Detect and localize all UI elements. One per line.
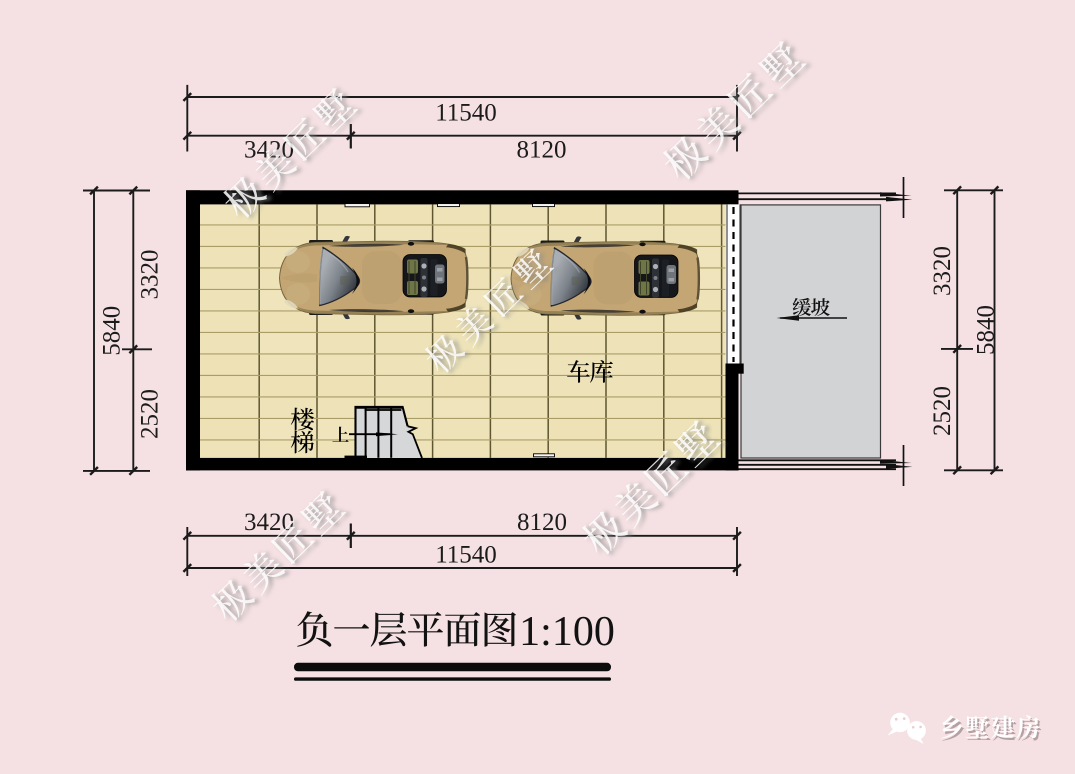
svg-text:2520: 2520 xyxy=(929,386,956,436)
svg-text:11540: 11540 xyxy=(435,99,497,126)
svg-text:5840: 5840 xyxy=(973,305,1000,355)
svg-text:8120: 8120 xyxy=(517,137,567,164)
svg-text:3320: 3320 xyxy=(929,246,956,296)
svg-text:5840: 5840 xyxy=(99,306,126,356)
svg-text:11540: 11540 xyxy=(435,542,497,569)
svg-text:1:100: 1:100 xyxy=(519,609,615,655)
svg-text:2520: 2520 xyxy=(137,389,164,439)
svg-text:3320: 3320 xyxy=(137,250,164,300)
svg-text:8120: 8120 xyxy=(517,509,567,536)
